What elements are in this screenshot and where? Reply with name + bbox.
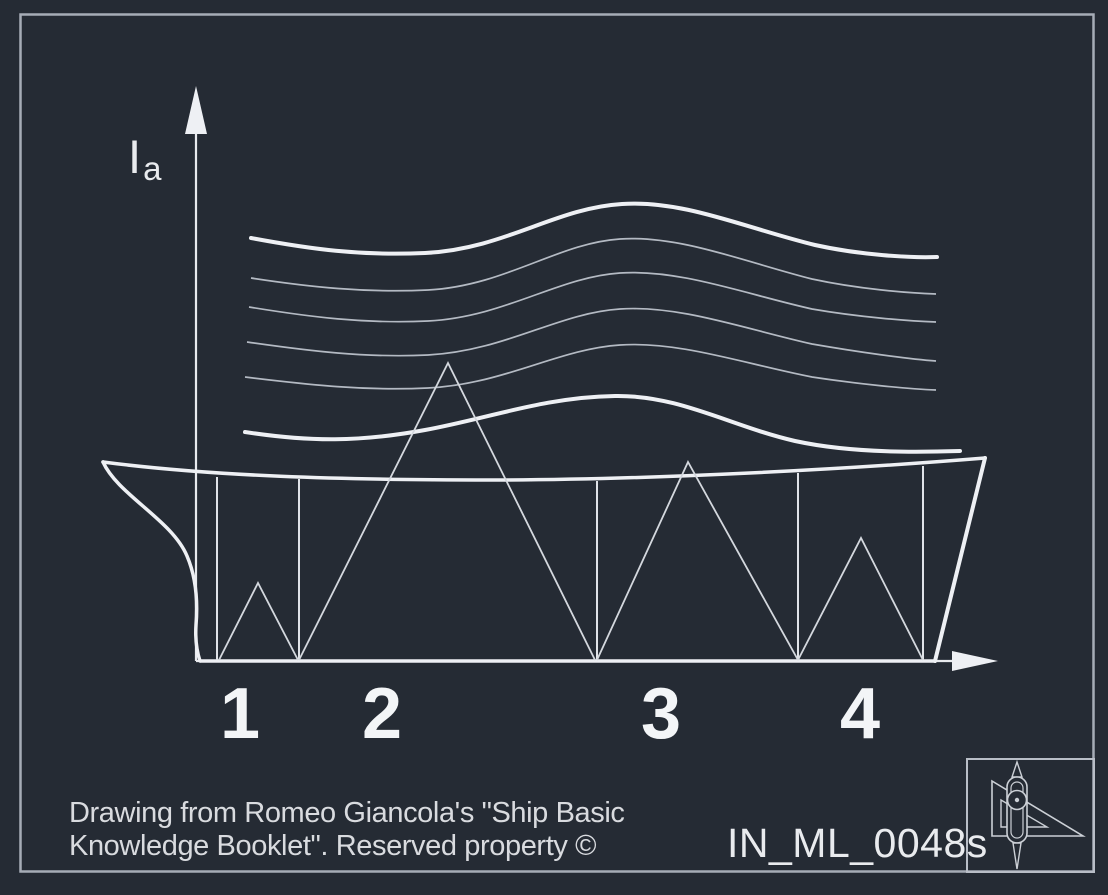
y-axis-label-subscript: a	[143, 150, 161, 187]
section-triangle-large-2	[597, 462, 798, 660]
station-number-4: 4	[840, 678, 880, 750]
curve-upper-thick	[251, 204, 937, 258]
diagram-line-art	[0, 0, 1108, 895]
station-number-1: 1	[220, 678, 260, 750]
x-axis-arrowhead-icon	[952, 651, 998, 671]
section-triangle-small-1	[219, 583, 298, 660]
drafting-compass-icon	[1007, 762, 1027, 869]
hull-stem-profile	[935, 458, 985, 661]
curve-thin-3	[247, 309, 936, 361]
curve-lower-thick	[245, 396, 960, 452]
y-axis-arrowhead-icon	[185, 86, 207, 134]
y-axis-label-main: I	[128, 130, 141, 183]
section-triangle-small-2	[798, 538, 923, 660]
hull-stern-profile	[103, 462, 200, 661]
hull-deck-line	[103, 458, 985, 480]
station-number-2: 2	[362, 678, 402, 750]
curve-thin-2	[249, 273, 936, 322]
drawing-code: IN_ML_0048s	[727, 820, 988, 867]
frame-border	[21, 15, 1094, 872]
curve-thin-4	[245, 345, 936, 390]
credit-caption-line2: Knowledge Booklet". Reserved property ©	[69, 830, 625, 863]
section-triangle-large-1	[299, 363, 595, 660]
ship-curves-diagram: Ia 1 2 3 4 Drawing from Romeo Giancola's…	[0, 0, 1108, 895]
credit-caption: Drawing from Romeo Giancola's "Ship Basi…	[69, 797, 625, 863]
set-square-icon	[992, 781, 1083, 836]
station-number-3: 3	[641, 678, 681, 750]
credit-caption-line1: Drawing from Romeo Giancola's "Ship Basi…	[69, 797, 625, 830]
y-axis-label: Ia	[128, 133, 161, 180]
